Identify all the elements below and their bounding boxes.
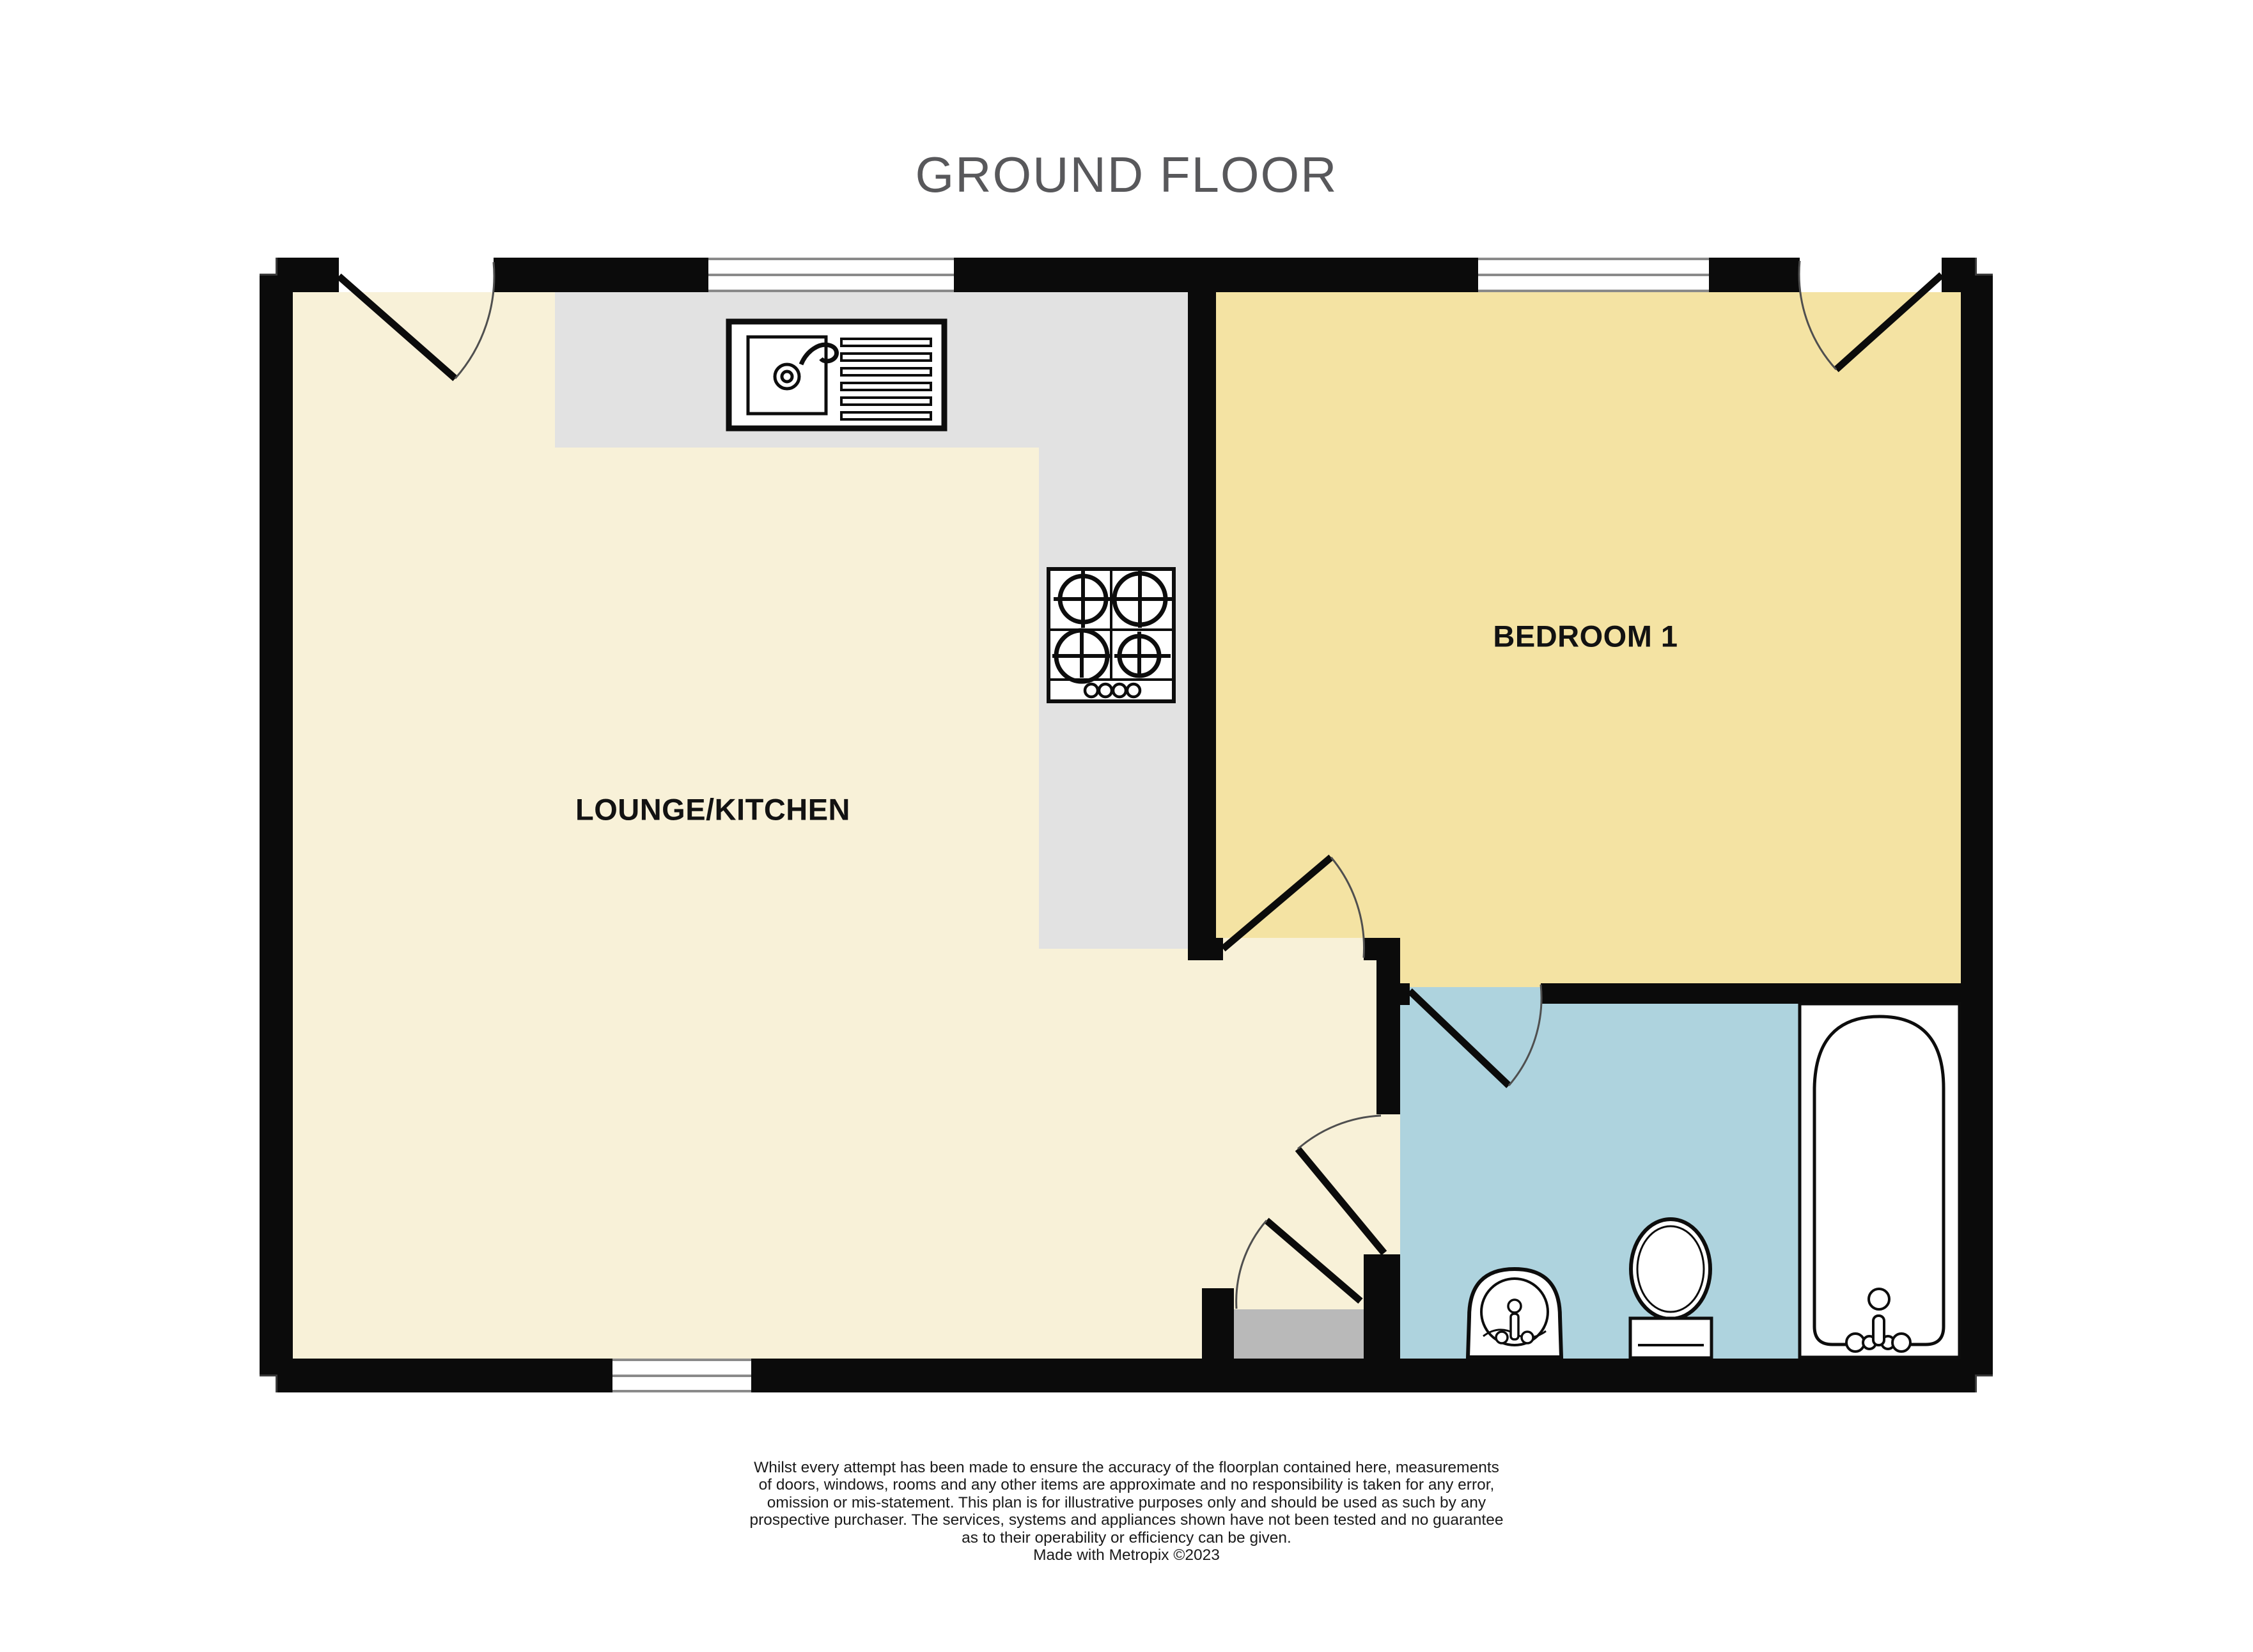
- wall-left: [260, 258, 293, 1392]
- window-mid-line: [708, 274, 954, 276]
- kitchen-counter-top: [555, 292, 1188, 448]
- corner-notch: [260, 1375, 277, 1392]
- window: [1478, 258, 1709, 292]
- floorplan: LOUNGE/KITCHEN BEDROOM 1: [0, 0, 2253, 1652]
- credit-line: Made with Metropix ©2023: [0, 1547, 2253, 1564]
- wall-top-segment: [954, 258, 1478, 292]
- wall-bottom-segment: [260, 1359, 612, 1392]
- corner-notch: [260, 258, 277, 276]
- wall-top-segment: [1709, 258, 1800, 292]
- bathroom-floor: [1400, 987, 1961, 1359]
- entrance-step: [1234, 1309, 1364, 1359]
- wall-step-right-column: [1364, 1254, 1400, 1359]
- disclaimer-line: omission or mis-statement. This plan is …: [0, 1494, 2253, 1511]
- wall-stub: [1188, 938, 1223, 960]
- window: [708, 258, 954, 292]
- wall-stub: [1364, 938, 1400, 960]
- wall-right: [1961, 258, 1993, 1392]
- wall-lounge-bedroom: [1188, 292, 1216, 960]
- wall-step-left-column: [1202, 1288, 1234, 1359]
- window-mid-line: [612, 1375, 751, 1377]
- corner-notch: [1975, 258, 1993, 276]
- wall-bottom-segment: [751, 1359, 1993, 1392]
- disclaimer-line: prospective purchaser. The services, sys…: [0, 1511, 2253, 1529]
- disclaimer-line: as to their operability or efficiency ca…: [0, 1529, 2253, 1547]
- corner-notch: [1975, 1375, 1993, 1392]
- kitchen-counter-column: [1039, 448, 1188, 949]
- window-mid-line: [1478, 274, 1709, 276]
- wall-bedroom-bathroom: [1541, 983, 1961, 1004]
- wall-stub: [1394, 983, 1410, 1005]
- window: [612, 1359, 751, 1392]
- disclaimer: Whilst every attempt has been made to en…: [0, 1459, 2253, 1564]
- room-label-lounge-kitchen: LOUNGE/KITCHEN: [575, 792, 850, 827]
- disclaimer-line: Whilst every attempt has been made to en…: [0, 1459, 2253, 1476]
- wall-top-segment: [494, 258, 708, 292]
- room-label-bedroom-1: BEDROOM 1: [1493, 619, 1678, 654]
- disclaimer-line: of doors, windows, rooms and any other i…: [0, 1476, 2253, 1493]
